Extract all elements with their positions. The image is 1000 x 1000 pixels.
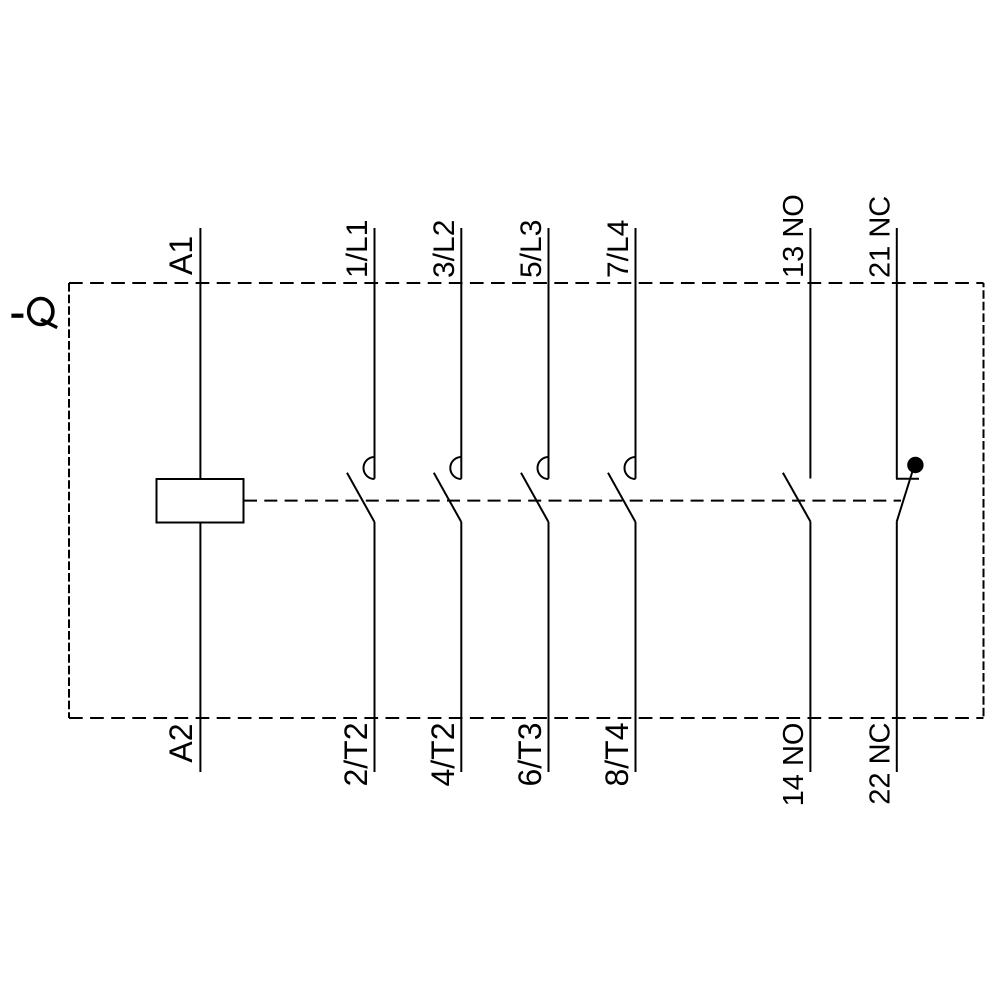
svg-text:3/L2: 3/L2	[428, 220, 461, 278]
svg-text:21 NC: 21 NC	[865, 196, 897, 278]
svg-text:A1: A1	[163, 236, 199, 275]
svg-text:14 NO: 14 NO	[778, 723, 810, 807]
svg-text:22 NC: 22 NC	[865, 723, 897, 805]
svg-text:13 NO: 13 NO	[778, 194, 810, 278]
svg-text:4/T2: 4/T2	[425, 723, 461, 787]
svg-text:5/L3: 5/L3	[515, 220, 548, 278]
svg-text:A2: A2	[163, 724, 199, 763]
svg-text:2/T2: 2/T2	[338, 723, 374, 787]
svg-text:7/L4: 7/L4	[602, 220, 635, 278]
svg-text:8/T4: 8/T4	[599, 723, 635, 787]
svg-text:1/L1: 1/L1	[341, 220, 374, 278]
svg-text:6/T3: 6/T3	[512, 723, 548, 787]
